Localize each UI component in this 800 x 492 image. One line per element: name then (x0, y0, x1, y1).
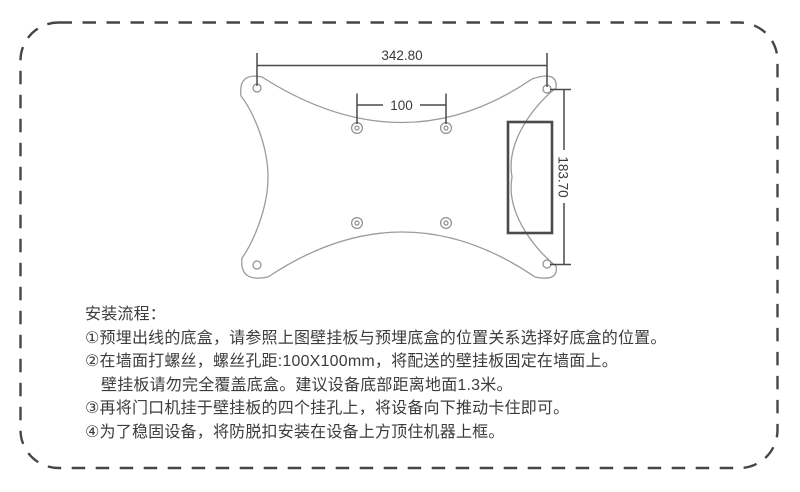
instruction-step-1: ①预埋出线的底盒，请参照上图壁挂板与预埋底盒的位置关系选择好底盒的位置。 (85, 327, 745, 351)
instruction-step-2: ②在墙面打螺丝，螺丝孔距:100X100mm，将配送的壁挂板固定在墙面上。 (85, 350, 745, 374)
dimension-height-value: 183.70 (556, 156, 571, 197)
outlet-box-rect (508, 122, 552, 233)
corner-hole-bottom-left (253, 261, 261, 269)
instruction-step-3: ③再将门口机挂于壁挂板的四个挂孔上，将设备向下推动卡住即可。 (85, 397, 745, 421)
installation-instructions: 安装流程： ①预埋出线的底盒，请参照上图壁挂板与预埋底盒的位置关系选择好底盒的位… (85, 303, 745, 444)
manual-page: { "diagram": { "dim_width": "342.80", "d… (0, 0, 800, 492)
screw-hole-bottom-right (441, 218, 452, 229)
screw-hole-top-left (352, 123, 363, 134)
dimension-width-value: 342.80 (381, 48, 422, 63)
screw-hole-bottom-left (352, 218, 363, 229)
instruction-step-2-note: 壁挂板请勿完全覆盖底盒。建议设备底部距离地面1.3米。 (85, 374, 745, 398)
screw-hole-top-right (441, 123, 452, 134)
corner-hole-bottom-right (543, 260, 551, 268)
instruction-step-4: ④为了稳固设备，将防脱扣安装在设备上方顶住机器上框。 (85, 421, 745, 445)
dimension-hole-spacing-value: 100 (390, 98, 413, 113)
instructions-title: 安装流程： (85, 303, 745, 327)
